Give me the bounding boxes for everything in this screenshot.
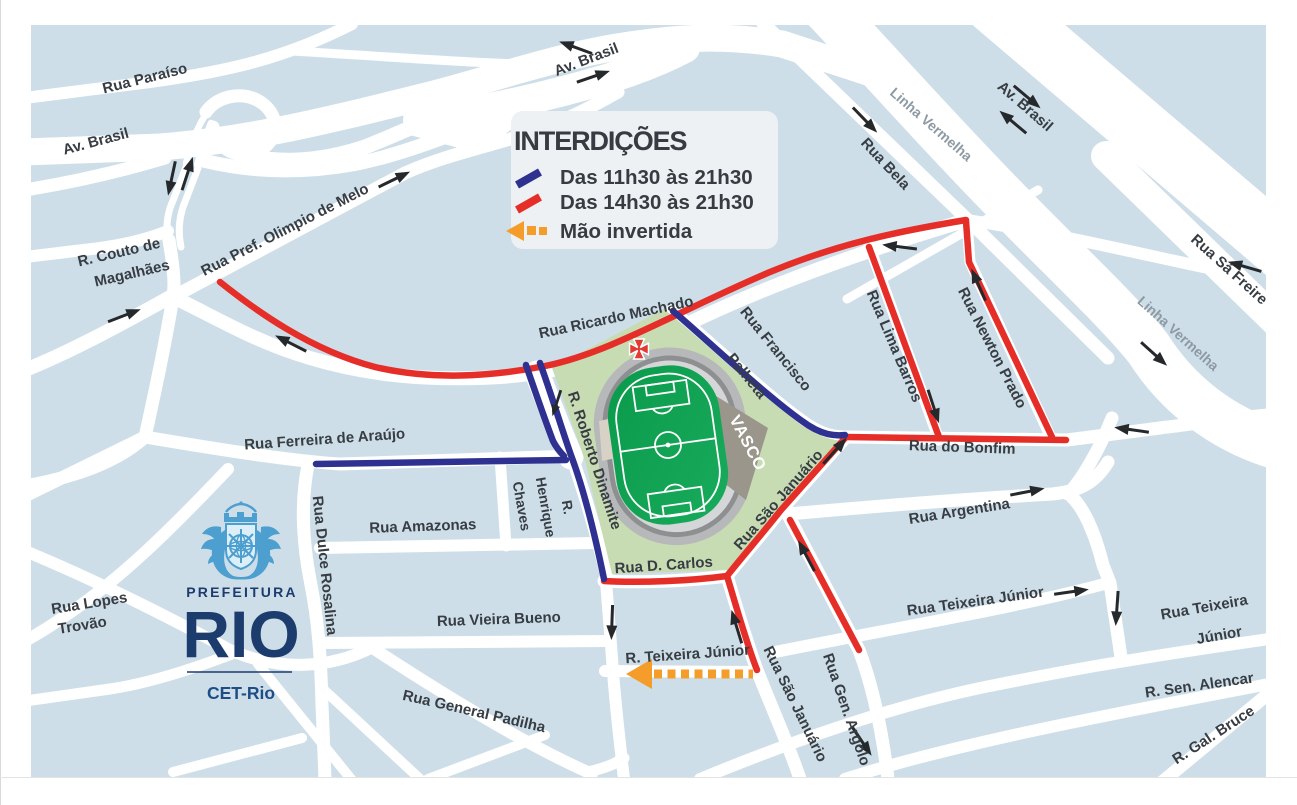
svg-text:Das 11h30 às 21h30: Das 11h30 às 21h30 — [560, 166, 753, 189]
svg-text:Mão invertida: Mão invertida — [560, 220, 693, 243]
svg-text:CET-Rio: CET-Rio — [207, 683, 275, 703]
svg-text:Das 14h30 às 21h30: Das 14h30 às 21h30 — [560, 191, 754, 214]
svg-text:INTERDIÇÕES: INTERDIÇÕES — [514, 125, 687, 156]
svg-text:RIO: RIO — [182, 597, 299, 671]
svg-text:R.: R. — [559, 499, 577, 516]
